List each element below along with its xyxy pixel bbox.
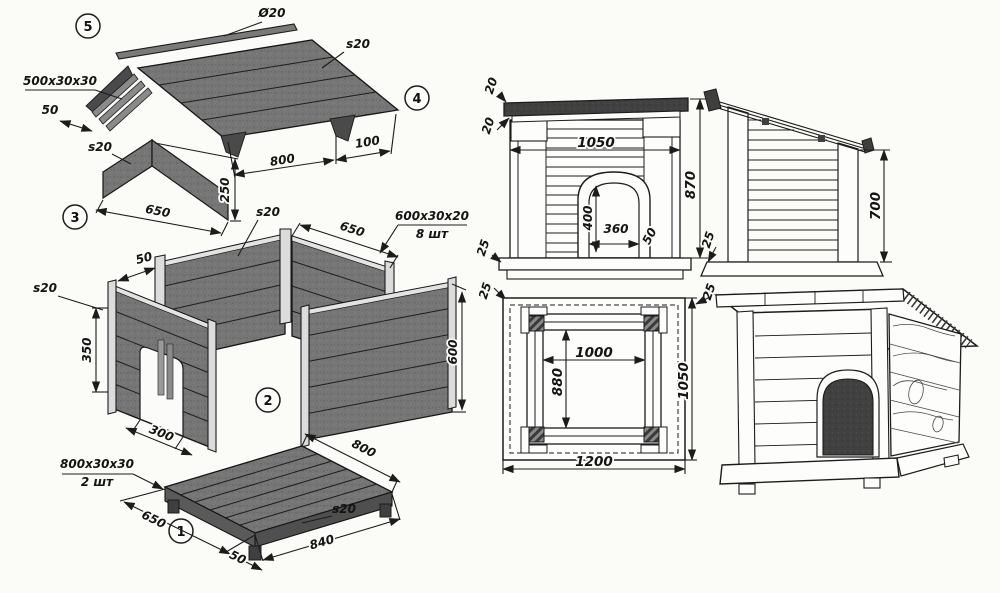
badge-part4: 4 xyxy=(405,86,429,110)
dim-floor-length: 840 xyxy=(308,532,336,552)
corner-post xyxy=(280,229,291,324)
dim-gable-sheet: s20 xyxy=(88,140,112,154)
dim-plan-width: 1200 xyxy=(575,454,613,470)
svg-text:2: 2 xyxy=(263,394,272,409)
dim-rear-wall-height: 700 xyxy=(868,192,884,220)
roof-hook xyxy=(762,118,769,125)
dim-floor-right: 800 xyxy=(349,437,378,461)
dim-roof-batten: 500x30x30 xyxy=(23,74,97,88)
side-plinth xyxy=(701,262,883,276)
dim-front-width: 1050 xyxy=(577,135,615,151)
svg-text:4: 4 xyxy=(412,92,421,107)
front-plinth xyxy=(499,258,691,270)
eave-cap xyxy=(862,138,874,153)
dim-plan-inner-width: 1000 xyxy=(575,345,613,361)
roof-cleat-left xyxy=(221,132,246,157)
dim-overall-height: 870 xyxy=(683,171,699,199)
dim-plinth-mid: 25 xyxy=(699,230,717,250)
part-floor: 800x30x30 2 шт 1 650 50 840 800 s20 xyxy=(60,434,400,570)
dim-runner-qty: 2 шт xyxy=(81,475,114,489)
dim-ridge-dia: Ø20 xyxy=(258,6,286,20)
dim-post-section: 600x30x20 xyxy=(395,209,469,223)
part-gable: s20 250 650 3 xyxy=(63,140,241,236)
persp-corner-trim-left xyxy=(737,311,755,467)
dim-gable-height: 250 xyxy=(218,177,232,202)
dim-gable-width: 650 xyxy=(144,202,171,221)
seen-through-post xyxy=(158,340,164,395)
dim-floor-mid: 25 xyxy=(700,282,718,302)
dim-batten-offset: 50 xyxy=(42,103,59,117)
persp-foot xyxy=(864,478,880,488)
ridge-cap xyxy=(704,89,721,111)
dim-floor-left: 25 xyxy=(476,281,494,301)
doghouse-drawing: Ø20 s20 500x30x30 50 xyxy=(0,0,1000,593)
badge-part2: 2 xyxy=(256,388,280,412)
dim-door-width-front: 360 xyxy=(603,222,628,236)
corner-post xyxy=(108,280,116,414)
dim-plan-depth: 1050 xyxy=(676,362,692,400)
svg-text:3: 3 xyxy=(70,211,79,226)
svg-text:1: 1 xyxy=(176,525,185,540)
dim-foot-inset: 50 xyxy=(227,547,248,567)
corner-post xyxy=(301,305,309,447)
corner-post xyxy=(208,319,216,452)
dim-door-height: 400 xyxy=(581,205,595,231)
blueprint-page: Ø20 s20 500x30x30 50 xyxy=(0,0,1000,593)
dim-backwall-sheet: s20 xyxy=(256,205,280,219)
side-view: 700 xyxy=(701,89,892,276)
front-trim-right xyxy=(643,116,680,137)
front-view: 1050 400 360 50 20 20 25 25 xyxy=(474,76,691,301)
dim-frontwall-sheet: s20 xyxy=(33,281,57,295)
badge-part1: 1 xyxy=(169,519,193,543)
badge-part5: 5 xyxy=(76,14,100,38)
svg-text:5: 5 xyxy=(83,20,92,35)
dim-floor-sheet: s20 xyxy=(332,502,356,516)
floor-foot xyxy=(168,500,179,513)
dim-doorwall-height: 350 xyxy=(80,337,94,362)
persp-door-opening xyxy=(823,379,873,455)
exploded-view: Ø20 s20 500x30x30 50 xyxy=(23,6,469,570)
part-walls: 2 50 s20 650 600x30x20 8 шт s20 350 300 xyxy=(33,205,469,455)
dim-backwall-width: 650 xyxy=(338,219,366,240)
roof-hook xyxy=(818,135,825,142)
dim-wall-height: 600 xyxy=(446,339,460,364)
dim-plan-inner-depth: 880 xyxy=(550,368,566,396)
dim-roof-batten-20: 20 xyxy=(479,116,497,136)
dim-runner-section: 800x30x30 xyxy=(60,457,134,471)
dim-plinth-left: 25 xyxy=(474,238,492,258)
dim-roof-overhang: 100 xyxy=(354,133,381,151)
perspective-view xyxy=(716,289,977,494)
dim-floor-front: 650 xyxy=(139,508,168,532)
dim-corner-gap: 50 xyxy=(134,249,154,267)
front-floor-edge xyxy=(507,270,683,279)
side-post-left xyxy=(728,107,748,262)
part-roof: Ø20 s20 500x30x30 50 xyxy=(23,6,429,178)
dim-post-qty: 8 шт xyxy=(416,227,449,241)
floor-foot xyxy=(380,504,391,517)
side-post-right xyxy=(838,143,858,262)
dim-roof-board-20: 20 xyxy=(482,76,500,96)
front-trim-left xyxy=(511,120,547,141)
plan-view: 1000 880 1050 1200 xyxy=(503,298,697,474)
roof-cleat-right xyxy=(330,115,355,141)
seen-through-post xyxy=(167,344,173,399)
badge-part3: 3 xyxy=(63,205,87,229)
dim-roof-sheet: s20 xyxy=(346,37,370,51)
persp-foot xyxy=(739,484,755,494)
